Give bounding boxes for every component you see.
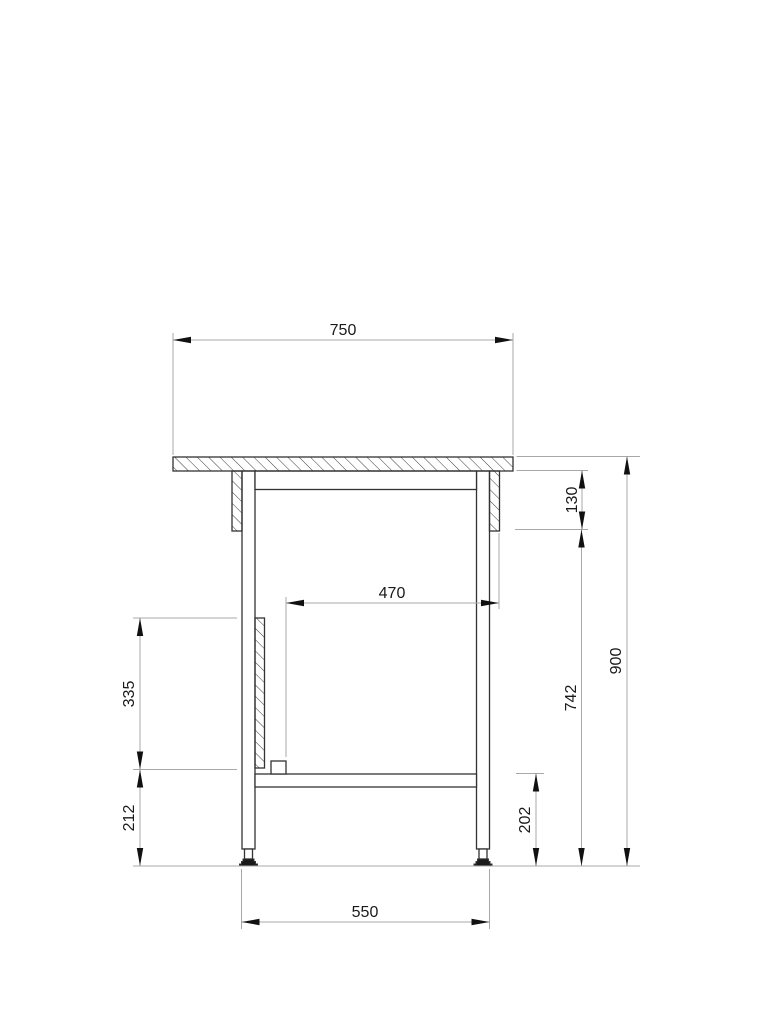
right-leg	[477, 471, 490, 849]
dim-tabletop-width: 750	[173, 322, 513, 455]
arrowhead-down-icon	[624, 848, 630, 866]
dim-shelf-to-floor: 202	[516, 774, 544, 867]
arrowhead-up-icon	[578, 530, 584, 548]
left-mount-bracket	[232, 471, 242, 531]
dim-130-label: 130	[564, 487, 581, 514]
dim-335-lines	[133, 618, 237, 770]
arrowhead-left-icon	[173, 337, 191, 343]
dim-750-label: 750	[330, 322, 357, 339]
technical-drawing-canvas: 750 470 130	[0, 0, 762, 1024]
dim-900-label: 900	[608, 648, 625, 675]
dim-strip-to-floor: 212	[121, 770, 143, 867]
left-foot-stem	[245, 849, 253, 859]
dim-212-label: 212	[121, 805, 138, 832]
arrowhead-down-icon	[137, 848, 143, 866]
dim-470-lines	[286, 533, 499, 757]
arrowhead-up-icon	[624, 457, 630, 475]
right-foot-stem	[479, 849, 487, 859]
shelf-rail	[255, 774, 477, 787]
arrowhead-right-icon	[472, 919, 490, 925]
arrowhead-up-icon	[137, 618, 143, 636]
dim-550-label: 550	[352, 904, 379, 921]
arrowhead-up-icon	[579, 471, 585, 489]
left-foot-pad	[240, 859, 258, 866]
arrowhead-down-icon	[578, 848, 584, 866]
right-foot-pad	[474, 859, 492, 866]
dim-clear-inner-width: 470	[286, 533, 499, 757]
dim-slide-strip-length: 335	[121, 618, 237, 770]
workbench-geometry	[173, 457, 513, 866]
dim-height-under-bracket: 742	[563, 530, 585, 867]
dim-202-label: 202	[517, 807, 534, 834]
arrowhead-down-icon	[533, 848, 539, 866]
arrowhead-left-icon	[242, 919, 260, 925]
arrowhead-down-icon	[137, 752, 143, 770]
arrowhead-up-icon	[533, 774, 539, 792]
dim-470-label: 470	[379, 585, 406, 602]
left-leg	[242, 471, 255, 849]
dim-overall-height: 900	[517, 457, 641, 867]
slide-strip	[255, 618, 265, 768]
arrowhead-right-icon	[495, 337, 513, 343]
arrowhead-up-icon	[137, 770, 143, 788]
dim-bracket-drop: 130	[515, 471, 588, 530]
mount-block	[271, 761, 286, 774]
arrowhead-left-icon	[286, 600, 304, 606]
dim-335-label: 335	[121, 681, 138, 708]
tabletop	[173, 457, 513, 471]
apron-rail	[255, 471, 477, 490]
dim-leg-outer-span: 550	[242, 869, 490, 929]
dim-742-label: 742	[563, 685, 580, 712]
table-side-elevation-drawing: 750 470 130	[0, 0, 762, 1024]
dim-750-lines	[173, 333, 513, 455]
right-mount-bracket	[490, 471, 500, 531]
